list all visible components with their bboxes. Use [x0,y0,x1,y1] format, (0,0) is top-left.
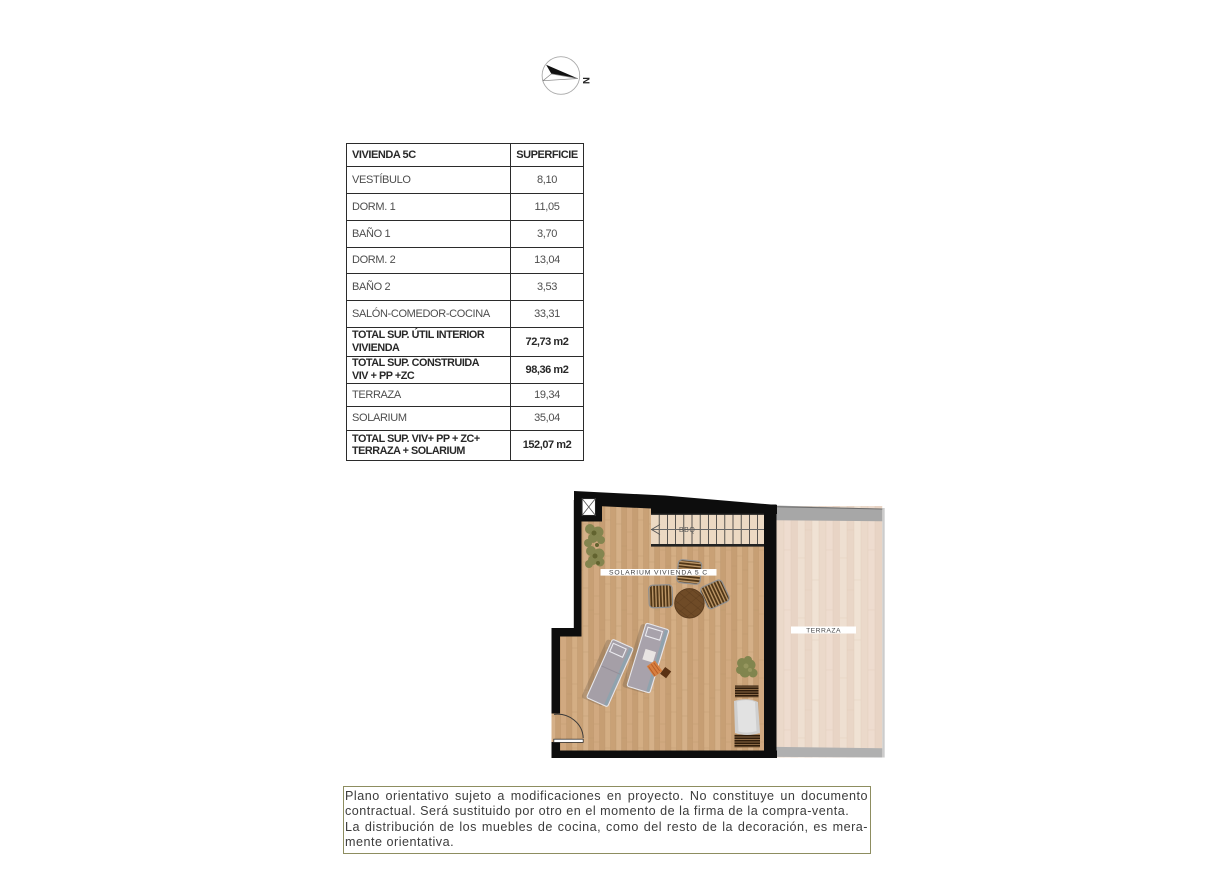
svg-text:N: N [580,77,591,84]
svg-text:TERRAZA: TERRAZA [806,627,841,634]
svg-text:BBQ: BBQ [679,527,695,534]
svg-text:SOLARIUM VIVIENDA 5 C: SOLARIUM VIVIENDA 5 C [609,570,708,577]
